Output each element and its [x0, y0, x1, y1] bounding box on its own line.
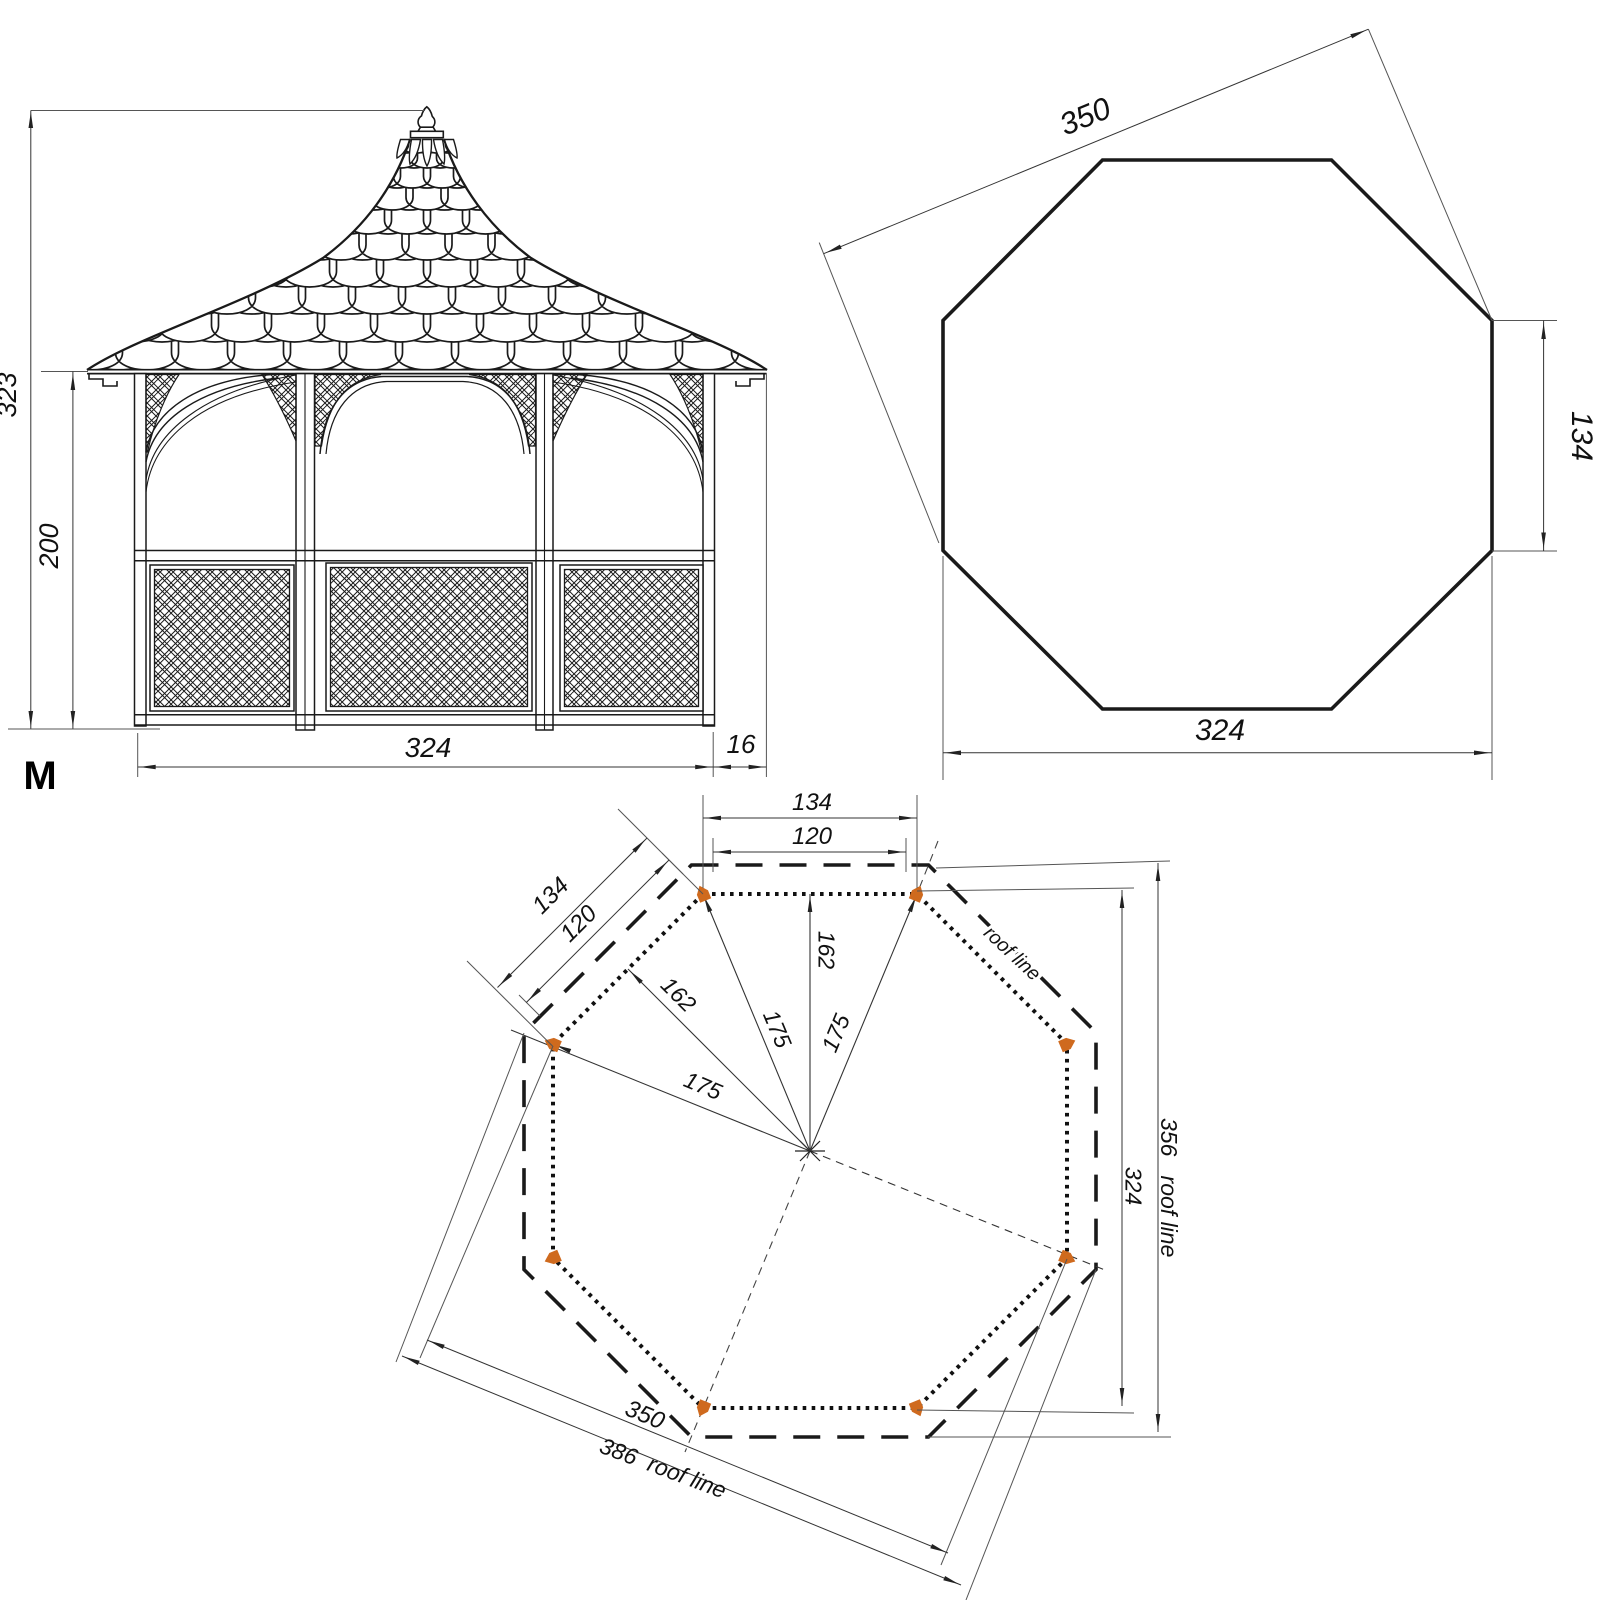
svg-text:324: 324 [405, 732, 452, 763]
svg-text:324: 324 [1195, 714, 1245, 747]
svg-text:324: 324 [1121, 1167, 1147, 1205]
svg-text:16: 16 [727, 729, 756, 759]
svg-text:M: M [23, 754, 56, 798]
svg-text:120: 120 [792, 823, 833, 850]
svg-text:134: 134 [792, 789, 832, 816]
svg-text:200: 200 [34, 523, 64, 569]
svg-text:356 roof line: 356 roof line [1156, 1118, 1182, 1257]
svg-text:134: 134 [1565, 411, 1598, 461]
svg-text:162: 162 [814, 931, 840, 970]
svg-text:323: 323 [0, 372, 22, 417]
